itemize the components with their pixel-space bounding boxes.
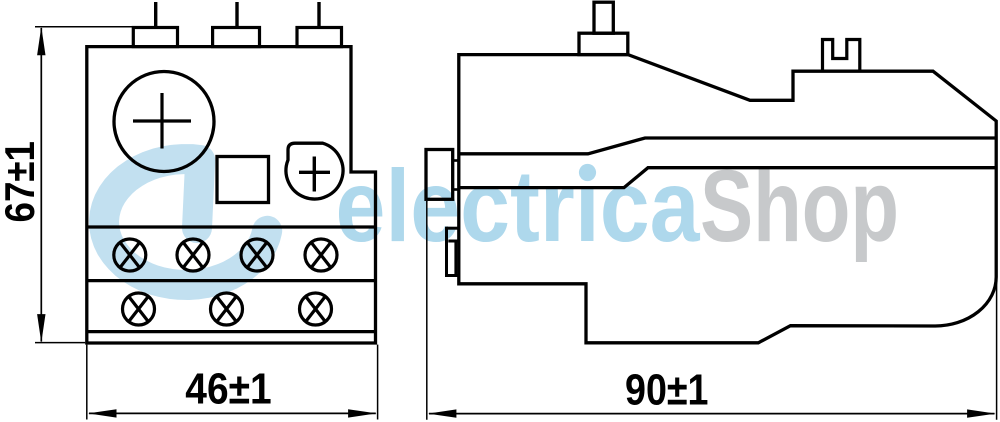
svg-text:90±1: 90±1 <box>625 366 709 415</box>
svg-text:67±1: 67±1 <box>0 141 43 223</box>
svg-text:46±1: 46±1 <box>185 365 271 414</box>
svg-text:electrica: electrica <box>336 149 701 263</box>
